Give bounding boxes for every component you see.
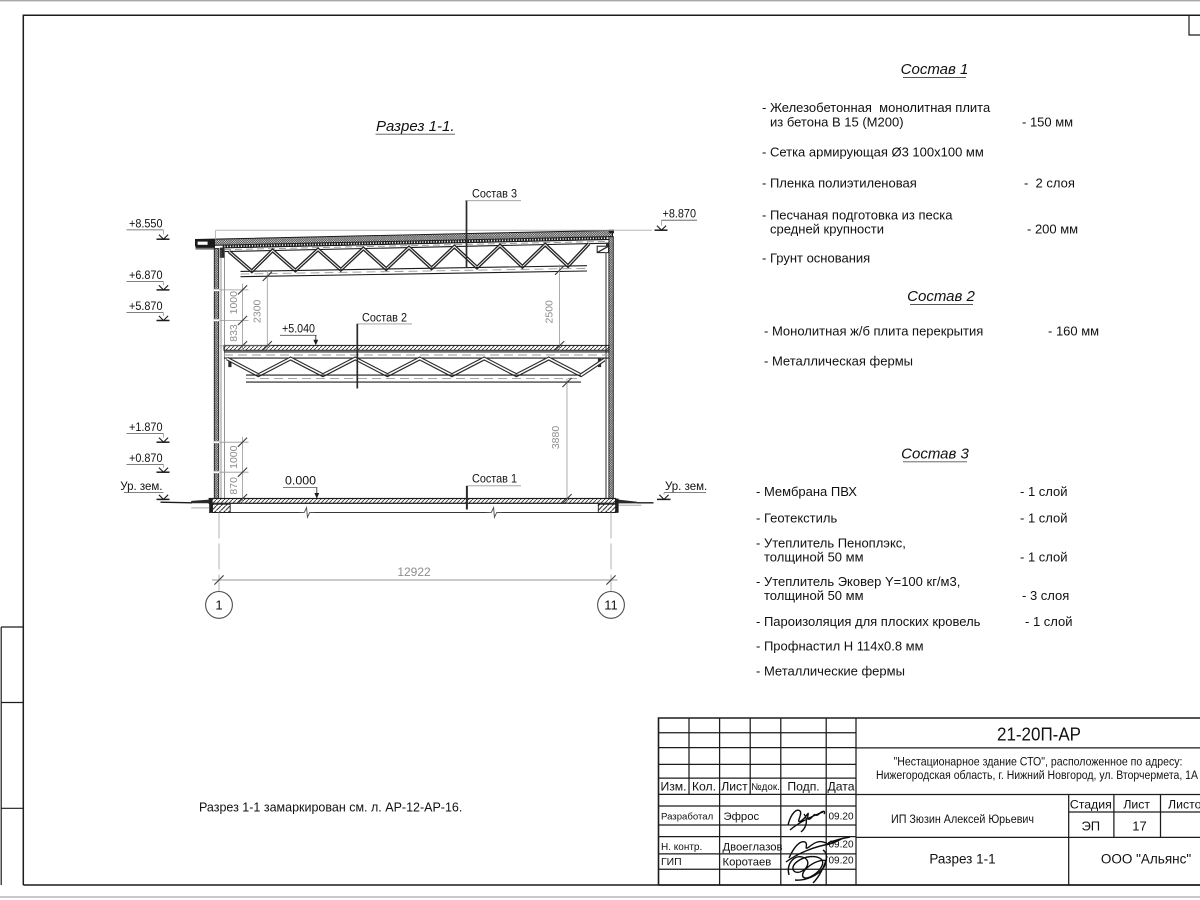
- svg-text:ГИП: ГИП: [661, 857, 682, 868]
- svg-text:- Пленка полиэтиленовая: - Пленка полиэтиленовая: [762, 176, 917, 191]
- svg-text:- 160 мм: - 160 мм: [1048, 323, 1099, 338]
- svg-text:Состав 1: Состав 1: [901, 61, 969, 78]
- svg-text:11: 11: [604, 598, 618, 613]
- svg-text:Состав 3: Состав 3: [901, 445, 969, 462]
- svg-text:870: 870: [228, 477, 240, 495]
- svg-text:Н. контр.: Н. контр.: [661, 842, 702, 853]
- svg-text:1000: 1000: [228, 445, 240, 469]
- svg-text:- Железобетонная монолитная п: - Железобетонная монолитная плита: [762, 100, 991, 115]
- svg-text:Разрез 1-1.: Разрез 1-1.: [376, 118, 455, 135]
- svg-text:+0.870: +0.870: [129, 453, 163, 465]
- svg-text:- 1 слой: - 1 слой: [1025, 614, 1073, 629]
- svg-text:Стадия: Стадия: [1070, 798, 1112, 812]
- svg-text:- Утеплитель Пеноплэкс,: - Утеплитель Пеноплэкс,: [756, 535, 906, 550]
- svg-text:Разрез 1-1: Разрез 1-1: [929, 852, 995, 867]
- svg-text:+8.870: +8.870: [663, 209, 697, 221]
- svg-text:1000: 1000: [228, 291, 240, 315]
- svg-text:- Профнастил Н 114х0.8 мм: - Профнастил Н 114х0.8 мм: [756, 638, 924, 653]
- svg-text:средней крупности: средней крупности: [770, 221, 884, 236]
- svg-text:Двоеглазов: Двоеглазов: [723, 841, 783, 853]
- svg-text:833: 833: [228, 324, 240, 342]
- svg-text:Разрез 1-1 замаркирован см. л.: Разрез 1-1 замаркирован см. л. АР-12-АР-…: [199, 801, 462, 815]
- svg-text:+5.040: +5.040: [282, 324, 315, 336]
- svg-text:№док.: №док.: [751, 782, 780, 793]
- svg-text:2500: 2500: [544, 300, 556, 324]
- svg-text:- 150 мм: - 150 мм: [1022, 114, 1073, 129]
- svg-text:17: 17: [1132, 818, 1146, 833]
- svg-text:1: 1: [215, 598, 222, 613]
- svg-text:- Металлические фермы: - Металлические фермы: [756, 663, 905, 678]
- svg-text:Дата: Дата: [828, 779, 855, 793]
- svg-text:21-20П-АР: 21-20П-АР: [997, 724, 1081, 745]
- svg-text:+1.870: +1.870: [129, 422, 163, 434]
- svg-text:2300: 2300: [251, 299, 263, 323]
- svg-text:ИП Зюзин Алексей Юрьевич: ИП Зюзин Алексей Юрьевич: [891, 814, 1034, 826]
- svg-text:Нижегородская область, г. Нижн: Нижегородская область, г. Нижний Новгоро…: [876, 768, 1199, 782]
- svg-text:Состав 2: Состав 2: [907, 288, 975, 305]
- svg-text:09.20: 09.20: [828, 811, 853, 822]
- svg-text:+8.550: +8.550: [129, 218, 163, 230]
- svg-text:ООО "Альянс": ООО "Альянс": [1101, 852, 1191, 867]
- svg-text:- Пароизоляция для плоских кро: - Пароизоляция для плоских кровель: [756, 614, 981, 629]
- svg-text:толщиной 50 мм: толщиной 50 мм: [764, 588, 864, 603]
- svg-text:"Нестационарное здание СТО", р: "Нестационарное здание СТО", расположенн…: [894, 754, 1183, 768]
- svg-text:- Сетка армирующая Ø3 100х100: - Сетка армирующая Ø3 100х100 мм: [762, 144, 984, 159]
- svg-text:- Монолитная ж/б плита перекры: - Монолитная ж/б плита перекрытия: [764, 323, 983, 338]
- svg-text:Ур. зем.: Ур. зем.: [120, 481, 162, 493]
- svg-text:Разработал: Разработал: [661, 812, 713, 823]
- svg-text:0.000: 0.000: [285, 475, 316, 487]
- svg-text:ЭП: ЭП: [1081, 818, 1100, 833]
- svg-text:Состав 3: Состав 3: [472, 187, 517, 201]
- svg-text:толщиной 50 мм: толщиной 50 мм: [764, 549, 864, 564]
- svg-text:- Металлическая фермы: - Металлическая фермы: [764, 354, 913, 369]
- svg-text:- Мембрана ПВХ: - Мембрана ПВХ: [756, 484, 857, 499]
- svg-text:- 200 мм: - 200 мм: [1027, 221, 1078, 236]
- svg-text:Лист: Лист: [1123, 798, 1150, 812]
- svg-text:- Песчаная подготовка из песка: - Песчаная подготовка из песка: [762, 207, 953, 222]
- svg-text:- Грунт основания: - Грунт основания: [762, 250, 870, 265]
- svg-text:Лист: Лист: [721, 779, 748, 793]
- svg-text:Изм.: Изм.: [660, 779, 686, 793]
- svg-text:- Геотекстиль: - Геотекстиль: [756, 510, 837, 525]
- svg-text:Кол.: Кол.: [692, 779, 716, 793]
- svg-text:- 1 слой: - 1 слой: [1020, 484, 1068, 499]
- svg-text:Состав 2: Состав 2: [362, 311, 407, 325]
- svg-text:- 1 слой: - 1 слой: [1020, 549, 1068, 564]
- svg-text:Ур. зем.: Ур. зем.: [665, 481, 707, 493]
- svg-text:- Утеплитель Эковер Y=100 кг/м: - Утеплитель Эковер Y=100 кг/м3,: [756, 574, 960, 589]
- svg-text:- 3 слоя: - 3 слоя: [1022, 588, 1069, 603]
- svg-text:12922: 12922: [397, 565, 431, 579]
- svg-text:Листов: Листов: [1168, 798, 1200, 812]
- svg-text:Коротаев: Коротаев: [723, 856, 772, 868]
- svg-text:Эфрос: Эфрос: [724, 811, 760, 823]
- svg-text:+5.870: +5.870: [129, 301, 163, 313]
- svg-text:Состав 1: Состав 1: [472, 471, 517, 485]
- svg-text:- 1 слой: - 1 слой: [1020, 510, 1068, 525]
- svg-text:3880: 3880: [550, 426, 562, 450]
- svg-text:из бетона В 15 (М200): из бетона В 15 (М200): [770, 114, 904, 129]
- svg-text:Подп.: Подп.: [787, 779, 819, 793]
- svg-text:09.20: 09.20: [828, 855, 853, 866]
- svg-text:- 2 слоя: - 2 слоя: [1024, 176, 1075, 191]
- svg-text:+6.870: +6.870: [129, 270, 163, 282]
